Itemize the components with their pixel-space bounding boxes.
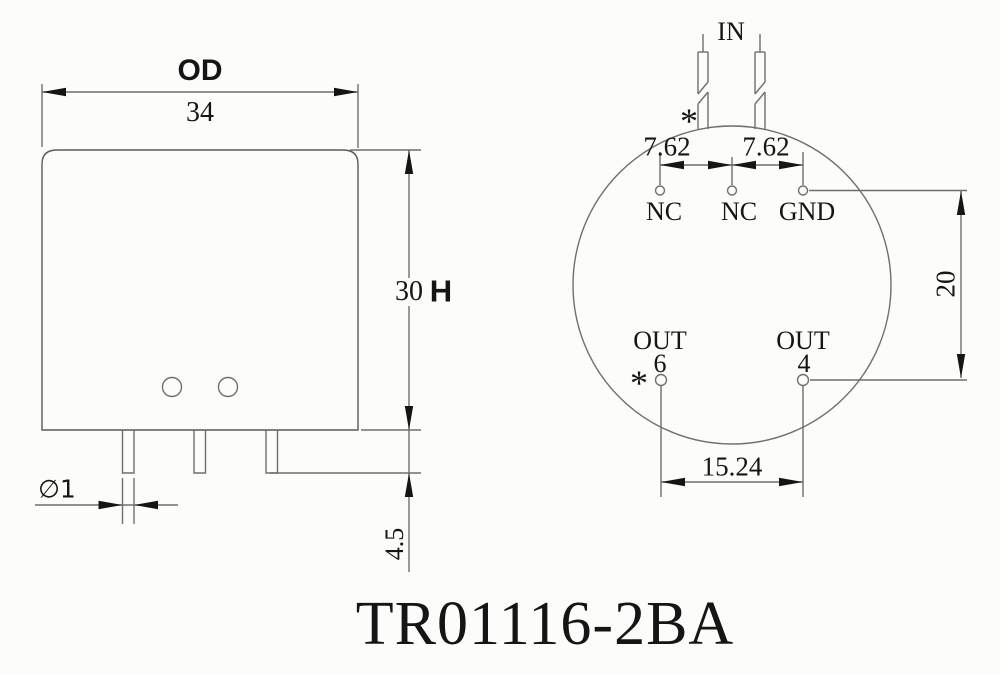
pin-hole-nc2 xyxy=(728,186,737,195)
front-width-value: 34 xyxy=(186,99,214,127)
front-body-outline xyxy=(42,150,358,430)
arrowhead-up xyxy=(405,473,413,497)
drawing-sheet: OD 34 30 H ∅1 4.5 IN * 7.62 7.62 NC NC G… xyxy=(0,0,1000,675)
break-line xyxy=(698,92,708,104)
front-hole-left xyxy=(163,378,182,397)
arrowhead-left xyxy=(661,478,685,486)
arrowhead-up xyxy=(405,150,413,174)
out6-polarity-asterisk: * xyxy=(630,365,648,401)
front-pin-diameter-value: ∅1 xyxy=(38,477,76,502)
arrowhead-left xyxy=(732,161,756,169)
input-lead-left xyxy=(698,34,708,129)
pitch-right-value: 7.62 xyxy=(742,134,789,161)
technical-drawing xyxy=(0,0,1000,675)
front-pin-1 xyxy=(123,430,135,473)
pin-label-nc2: NC xyxy=(721,199,757,225)
pin-label-gnd: GND xyxy=(779,199,835,225)
front-pin-3 xyxy=(266,430,278,473)
arrowhead-down xyxy=(957,354,965,378)
arrowhead-right xyxy=(708,161,732,169)
pin-number-out6: 6 xyxy=(654,351,667,377)
arrowhead-up xyxy=(957,191,965,215)
input-lead-right xyxy=(755,34,765,129)
front-view xyxy=(35,84,421,572)
pin-number-out4: 4 xyxy=(798,351,811,377)
front-hole-right xyxy=(219,378,238,397)
arrowhead-left xyxy=(660,161,684,169)
arrowhead-right xyxy=(779,478,803,486)
front-height-value: 30 xyxy=(391,278,427,306)
row-spacing-value: 20 xyxy=(933,271,960,298)
arrowhead-right xyxy=(779,161,803,169)
front-width-label: OD xyxy=(178,56,223,86)
bottom-view xyxy=(573,34,967,497)
arrowhead-right xyxy=(99,501,123,509)
front-pin-2 xyxy=(194,430,206,473)
arrowhead-left xyxy=(42,88,66,96)
front-pin-length-value: 4.5 xyxy=(382,528,408,561)
pin-hole-gnd xyxy=(799,186,808,195)
front-height-label: H xyxy=(430,276,452,307)
arrowhead-left xyxy=(134,501,158,509)
out-pitch-value: 15.24 xyxy=(702,454,763,481)
arrowhead-right xyxy=(334,88,358,96)
part-number-title: TR01116-2BA xyxy=(356,593,734,655)
pitch-left-value: 7.62 xyxy=(643,134,690,161)
break-line xyxy=(755,92,765,104)
input-label: IN xyxy=(717,19,744,45)
pin-hole-nc1 xyxy=(656,186,665,195)
arrowhead-down xyxy=(405,406,413,430)
break-line xyxy=(755,82,765,94)
break-line xyxy=(698,82,708,94)
pin-label-nc1: NC xyxy=(646,199,682,225)
